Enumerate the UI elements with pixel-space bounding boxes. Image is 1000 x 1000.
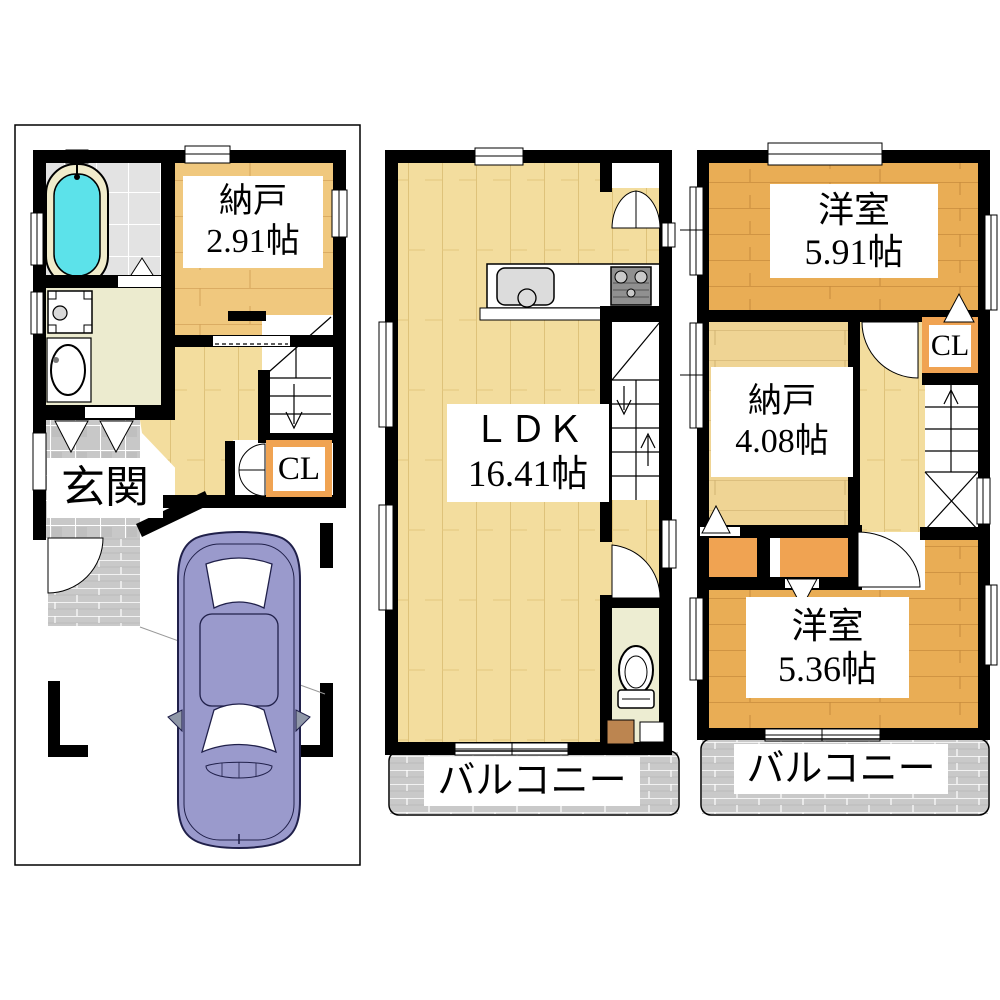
western2-label: 洋室 5.36帖 [746,597,909,698]
bath-door-opening [118,276,161,287]
storage3-area: 4.08帖 [735,422,829,462]
window-left-bathroom [31,213,43,265]
ldk-name: ＬＤＫ [473,409,584,453]
balcony2-sliding-door [455,743,568,755]
closet1-label: CL [273,447,325,491]
entry-recess [612,163,660,188]
window-right-ldk-small [662,223,675,247]
entrance-name: 玄関 [61,462,149,514]
balcony2-label: バルコニー [424,757,640,806]
kitchen-sink-icon [497,268,554,307]
western1-label: 洋室 5.91帖 [770,184,938,278]
washbasin-icon [47,338,91,402]
balcony3-label: バルコニー [734,744,948,794]
ldk-area: 16.41帖 [468,453,588,497]
balcony3-name: バルコニー [746,747,935,792]
storage1-area: 2.91帖 [206,222,300,262]
corner-box [640,722,664,742]
window-top-storage1 [185,146,230,163]
window-left-western2 [690,598,703,680]
window-right-storage1 [332,190,347,237]
window-left-storage3 [680,323,703,428]
entrance-label: 玄関 [47,458,163,518]
ldk-label: ＬＤＫ 16.41帖 [447,404,609,502]
entrance-side-door [33,433,46,490]
storage3-name: 納戸 [748,382,816,422]
storage3-label: 納戸 4.08帖 [711,367,853,477]
closet3-label: CL [929,325,971,367]
window-right-landing [977,478,990,524]
window-left-western1 [680,187,703,275]
window-left-ldk-2 [379,505,393,610]
hall2-door-gap-floor [600,542,612,596]
window-right-western1 [985,215,997,310]
western2-name: 洋室 [791,605,863,647]
washing-machine-icon [48,291,92,333]
storage1-label: 納戸 2.91帖 [183,176,323,268]
window-top-ldk [475,148,523,165]
closet1-text: CL [278,450,320,489]
balcony2-name: バルコニー [437,759,626,804]
western2-area: 5.36帖 [778,648,877,690]
closet-divider-gap [770,538,780,577]
stove-icon [611,267,651,305]
storage1-name: 納戸 [219,182,287,222]
western-room2-floor-ext [925,540,978,592]
car-icon [168,532,310,848]
closet3-text: CL [931,328,969,363]
stairs1-area [262,315,333,435]
window-top-western1 [768,143,882,165]
window-right-western2 [985,585,997,665]
storage1-opening-dotted [213,336,290,346]
window-left-ldk-1 [379,322,393,427]
washroom-door-opening [85,407,135,418]
closet-box-right [780,538,848,577]
toilet-icon [618,646,654,708]
closet-box-left [709,538,757,577]
western1-area: 5.91帖 [804,231,903,273]
hall3-door-arc-bottom [858,532,920,587]
step-box [607,720,634,744]
window-left-washroom [31,292,43,334]
floor-plan-page: 納戸 2.91帖 玄関 CL ＬＤＫ 16.41帖 バルコニー 洋室 5.91帖… [0,0,1000,1000]
western1-name: 洋室 [818,189,890,231]
window-right-hall2 [662,520,676,568]
